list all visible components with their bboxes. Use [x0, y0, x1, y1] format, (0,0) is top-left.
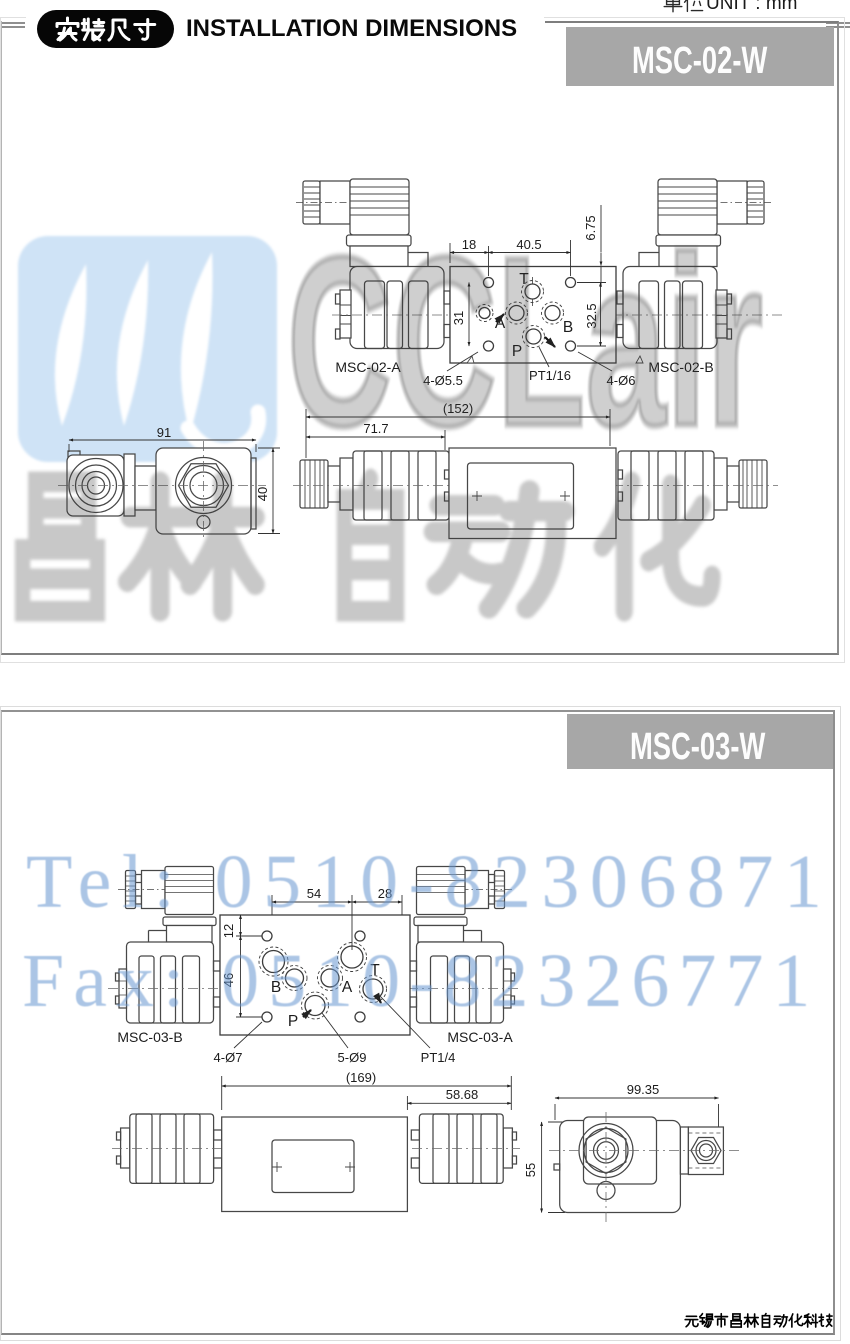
svg-text:58.68: 58.68 — [446, 1087, 479, 1102]
svg-text:MSC-03-A: MSC-03-A — [447, 1029, 513, 1045]
svg-text:55: 55 — [523, 1163, 538, 1177]
svg-text:MSC-03-B: MSC-03-B — [117, 1029, 182, 1045]
svg-text:4-Ø7: 4-Ø7 — [214, 1050, 243, 1065]
svg-text:99.35: 99.35 — [627, 1082, 660, 1097]
svg-text:5-Ø9: 5-Ø9 — [338, 1050, 367, 1065]
svg-text:PT1/4: PT1/4 — [421, 1050, 456, 1065]
svg-text:(169): (169) — [346, 1070, 376, 1085]
